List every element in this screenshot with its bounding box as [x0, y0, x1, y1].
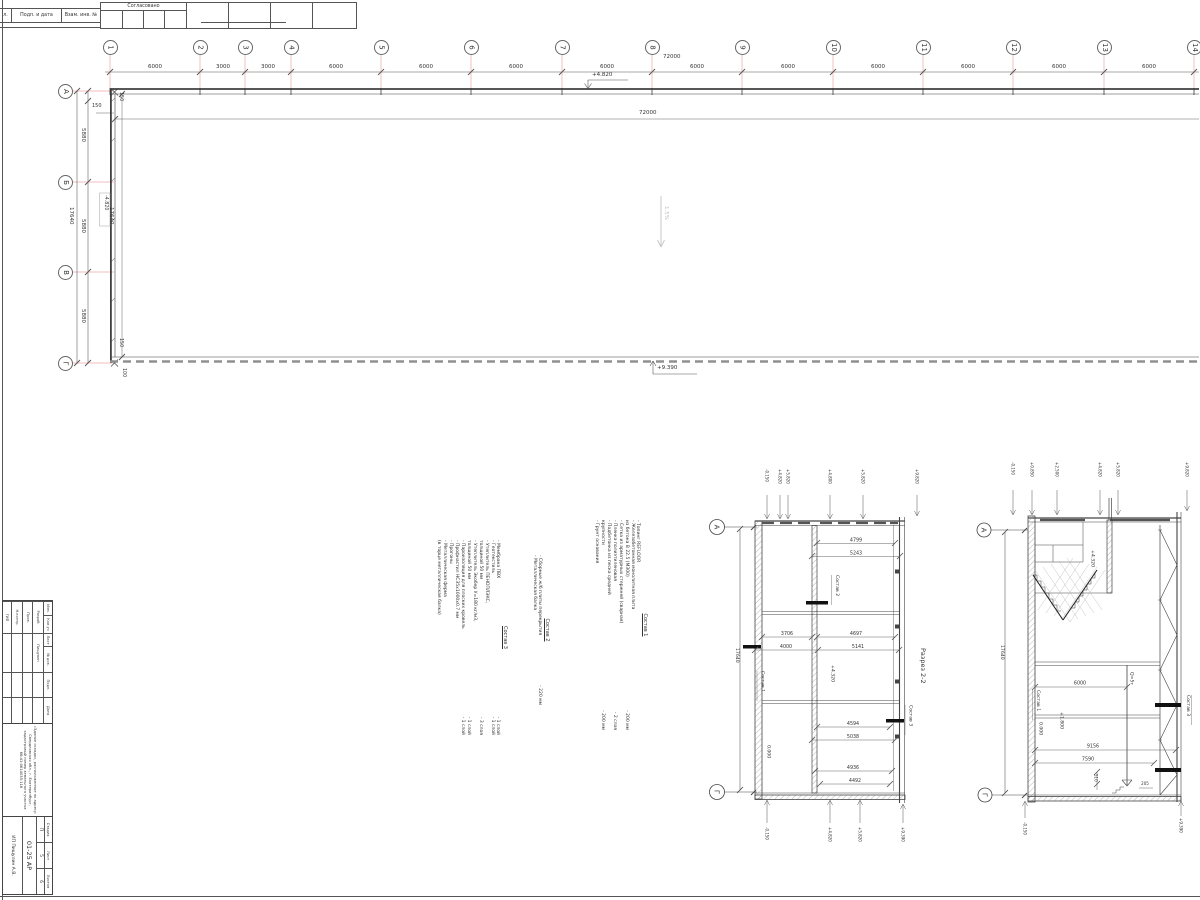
inner-height-label: 17640 — [108, 207, 114, 225]
dim-label: 6000 — [961, 64, 975, 70]
inner-width-label: 72000 — [639, 110, 657, 116]
svg-text:+4.820: +4.820 — [778, 469, 783, 484]
svg-text:+0.850: +0.850 — [1030, 462, 1035, 477]
title-block: Изм. Кол.уч Лист № док. Подп. Дата Разра… — [2, 600, 53, 895]
svg-text:Состав 3: Состав 3 — [908, 705, 914, 726]
elevation-bottom-label: +9.390 — [657, 365, 677, 371]
dim-label: 6000 — [329, 64, 343, 70]
dim-150-bottom-label: 150 — [118, 338, 123, 347]
axis-circle-2: 2 — [193, 40, 208, 55]
axis-number: 14 — [1190, 43, 1197, 52]
dim-label: 6000 — [509, 64, 523, 70]
svg-text:Г: Г — [713, 790, 721, 794]
svg-text:Г: Г — [981, 793, 989, 797]
svg-text:-0.150: -0.150 — [1011, 462, 1016, 475]
svg-text:17640: 17640 — [999, 645, 1005, 660]
section2-axis-letters: А Г — [980, 528, 989, 798]
axis-number: 5 — [378, 45, 385, 49]
section-drawing-2: 6000 9156 7590 205 А Г 17640 +4.320 Q=5т… — [975, 450, 1200, 850]
axis-circle-V: В — [58, 265, 73, 280]
axis-circle-A: А — [58, 84, 73, 99]
axis-number: 4 — [288, 45, 295, 49]
svg-text:+4.820: +4.820 — [828, 827, 833, 842]
axis-circle-8: 8 — [645, 40, 660, 55]
svg-text:Состав 2: Состав 2 — [834, 575, 840, 596]
axis-letter: Г — [62, 361, 69, 365]
plan-dimension-lines — [74, 69, 1199, 366]
svg-text:+4.800: +4.800 — [828, 469, 833, 484]
slope-arrow — [658, 196, 665, 247]
svg-text:0.000: 0.000 — [766, 745, 772, 758]
section2-staircase — [1033, 558, 1105, 622]
svg-text:510: 510 — [1094, 774, 1099, 782]
svg-text:4697: 4697 — [850, 631, 862, 637]
axis-circle-11: 11 — [916, 40, 931, 55]
dim-label: 6000 — [690, 64, 704, 70]
svg-text:3706: 3706 — [781, 631, 793, 637]
plan-walls — [110, 88, 1199, 367]
svg-text:+4.820: +4.820 — [1098, 462, 1103, 477]
dim-100-label: 100 — [121, 368, 126, 377]
axis-letter: В — [62, 270, 69, 275]
axis-circle-4: 4 — [284, 40, 299, 55]
axis-circle-B: Б — [58, 175, 73, 190]
slope-label: 1.5% — [663, 206, 669, 220]
total-width-label: 72000 — [663, 54, 681, 60]
axis-circle-10: 10 — [826, 40, 841, 55]
dim-150-top-label: 150 — [118, 92, 123, 101]
svg-text:9156: 9156 — [1087, 744, 1099, 750]
elevation-top-label: +4.820 — [592, 72, 612, 78]
svg-text:А: А — [713, 525, 721, 530]
svg-text:+9.820: +9.820 — [1185, 462, 1190, 477]
section-drawing-1: 4799 5243 3706 4697 4000 5141 4594 5038 … — [700, 455, 940, 855]
dim-label: 6000 — [419, 64, 433, 70]
axis-number: 13 — [1100, 43, 1107, 52]
svg-text:0.000: 0.000 — [1038, 722, 1044, 735]
axis-letter: Б — [62, 180, 69, 185]
axis-circle-6: 6 — [464, 40, 479, 55]
axis-circle-9: 9 — [735, 40, 750, 55]
svg-text:4492: 4492 — [849, 778, 861, 784]
axis-number: 2 — [197, 45, 204, 49]
svg-text:+4.320: +4.320 — [830, 665, 836, 682]
axis-circle-13: 13 — [1097, 40, 1112, 55]
svg-text:4799: 4799 — [850, 538, 862, 544]
axis-number: 11 — [919, 43, 926, 52]
axis-grid-lines — [73, 55, 1194, 363]
axis-circle-12: 12 — [1006, 40, 1021, 55]
svg-text:5038: 5038 — [847, 734, 859, 740]
svg-text:205: 205 — [1141, 781, 1149, 786]
svg-text:Состав 3: Состав 3 — [1185, 695, 1191, 716]
title-block-project-name: «Здание склада», расположенное по адресу… — [3, 723, 52, 816]
dim-5880-label: 5880 — [80, 219, 86, 233]
svg-text:Состав 1: Состав 1 — [760, 671, 766, 692]
elevation-mid-label: -4.820 — [103, 195, 108, 210]
axis-number: 6 — [468, 45, 475, 49]
note-title: Состав 2 — [544, 555, 550, 705]
axis-number: 3 — [242, 45, 249, 49]
title-block-doc-code: 01-25 АР — [22, 817, 36, 894]
svg-text:+9.390: +9.390 — [901, 827, 906, 842]
elevation-mark-top — [585, 80, 629, 89]
svg-text:+5.820: +5.820 — [1116, 462, 1121, 477]
axis-number: 9 — [739, 45, 746, 49]
section1-dim-labels: 4799 5243 3706 4697 4000 5141 4594 5038 … — [780, 538, 864, 785]
axis-number: 10 — [829, 43, 836, 52]
axis-number: 1 — [107, 45, 114, 49]
svg-text:5141: 5141 — [852, 644, 864, 650]
svg-text:+9.820: +9.820 — [915, 469, 920, 484]
svg-text:+5.820: +5.820 — [861, 469, 866, 484]
svg-text:4936: 4936 — [847, 765, 859, 771]
svg-text:+5.820: +5.820 — [786, 469, 791, 484]
note-sostav-3: Состав 3 - Мембрана ПВХ- 1 слой - Геотек… — [422, 540, 508, 735]
axis-circle-3: 3 — [238, 40, 253, 55]
axis-number: 7 — [559, 45, 566, 49]
dim-label: 6000 — [600, 64, 614, 70]
svg-text:-0.150: -0.150 — [765, 469, 770, 482]
note-sostav-1: Состав 1 - Топинг REFLOOR - Железобетонн… — [560, 520, 648, 730]
dim-label: 6000 — [148, 64, 162, 70]
svg-text:+9.390: +9.390 — [1179, 818, 1184, 833]
axis-circle-1: 1 — [103, 40, 118, 55]
section2-dim-labels: 6000 9156 7590 205 — [1074, 681, 1149, 787]
dim-5880-label: 5880 — [80, 309, 86, 323]
svg-text:17640: 17640 — [734, 648, 740, 663]
sheet-bottom-border — [0, 896, 1200, 897]
svg-text:Состав 1: Состав 1 — [1035, 690, 1041, 711]
dim-5880-label: 5880 — [80, 128, 86, 142]
dim-label: 6000 — [1052, 64, 1066, 70]
svg-text:6000: 6000 — [1074, 681, 1086, 687]
svg-text:7590: 7590 — [1082, 757, 1094, 763]
note-title: Состав 3 — [502, 540, 508, 735]
dim-label: 3000 — [261, 64, 275, 70]
total-height-label: 17640 — [68, 207, 74, 225]
axis-circle-5: 5 — [374, 40, 389, 55]
axis-circle-7: 7 — [555, 40, 570, 55]
axis-number: 12 — [1009, 43, 1016, 52]
axis-number: 8 — [649, 45, 656, 49]
section1-axis-letters: А Г — [713, 525, 721, 795]
axis-circle-14: 14 — [1187, 40, 1200, 55]
svg-text:-0.150: -0.150 — [1023, 822, 1028, 835]
svg-text:+4.320: +4.320 — [1090, 550, 1096, 567]
svg-text:+5.820: +5.820 — [858, 827, 863, 842]
dim-label: 6000 — [781, 64, 795, 70]
dim-label: 3000 — [216, 64, 230, 70]
section2-structure — [977, 498, 1181, 802]
svg-text:+2.500: +2.500 — [1055, 462, 1060, 477]
title-block-organization: ИП Пищулин А.В. — [3, 817, 22, 894]
dim-150-label: 150 — [92, 103, 102, 109]
section1-dimension-lines — [752, 495, 920, 823]
note-title: Состав 1 — [642, 520, 648, 730]
svg-text:4594: 4594 — [847, 721, 859, 727]
section-title: Разрез 2-2 — [919, 648, 927, 684]
dim-label: 6000 — [1142, 64, 1156, 70]
svg-text:Q=5т: Q=5т — [1129, 672, 1135, 685]
title-block-revision-table: Изм. Кол.уч Лист № док. Подп. Дата Разра… — [3, 601, 52, 723]
svg-text:-0.150: -0.150 — [765, 827, 770, 840]
axis-circle-G: Г — [58, 356, 73, 371]
axis-letter: А — [61, 89, 68, 94]
dim-label: 6000 — [871, 64, 885, 70]
svg-text:А: А — [980, 528, 988, 533]
svg-text:+1.800: +1.800 — [1059, 712, 1065, 729]
note-sostav-2: Состав 2 - Сборные ж/б плиты перекрытия-… — [524, 555, 550, 705]
svg-text:4000: 4000 — [780, 644, 792, 650]
svg-text:5243: 5243 — [850, 551, 862, 557]
title-block-right: Стадия Лист Листов П 5 6 01-25 АР ИП Пищ… — [3, 816, 52, 894]
